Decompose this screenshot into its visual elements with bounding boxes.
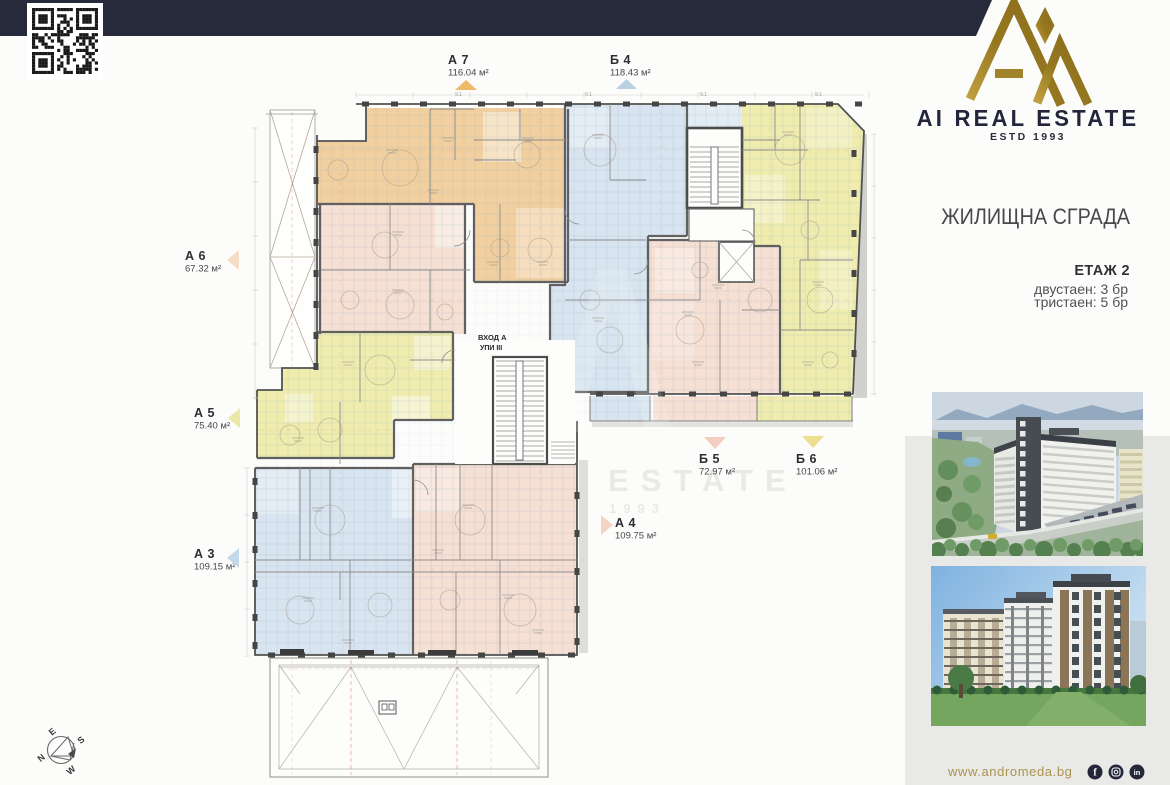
svg-text:101.06 м²: 101.06 м² [796,467,837,478]
svg-text:А 7: А 7 [448,53,469,67]
svg-text:А 3: А 3 [194,547,215,561]
svg-text:67.32 м²: 67.32 м² [185,264,221,275]
svg-text:75.40 м²: 75.40 м² [194,421,230,432]
svg-text:118.43 м²: 118.43 м² [610,68,651,79]
svg-text:109.15 м²: 109.15 м² [194,562,235,573]
svg-text:УПИ III: УПИ III [480,345,502,352]
svg-text:ВХОД А: ВХОД А [478,333,507,342]
svg-text:Б 4: Б 4 [610,53,631,67]
svg-text:S: S [75,734,86,746]
svg-text:72.97 м²: 72.97 м² [699,467,735,478]
svg-text:9.1: 9.1 [455,92,462,98]
svg-text:А 5: А 5 [194,406,215,420]
svg-text:Б 6: Б 6 [796,452,817,466]
svg-text:116.04 м²: 116.04 м² [448,68,489,79]
svg-text:А 4: А 4 [615,516,636,530]
svg-text:109.75 м²: 109.75 м² [615,531,656,542]
svg-text:E: E [47,726,58,738]
svg-text:Б 5: Б 5 [699,452,720,466]
svg-text:N: N [35,752,46,764]
svg-text:А 6: А 6 [185,249,206,263]
svg-text:9.1: 9.1 [700,92,707,98]
svg-text:in: in [1134,768,1141,777]
svg-text:1993: 1993 [609,501,666,516]
svg-text:9.1: 9.1 [815,92,822,98]
svg-text:W: W [64,763,77,776]
svg-text:9.1: 9.1 [585,92,592,98]
